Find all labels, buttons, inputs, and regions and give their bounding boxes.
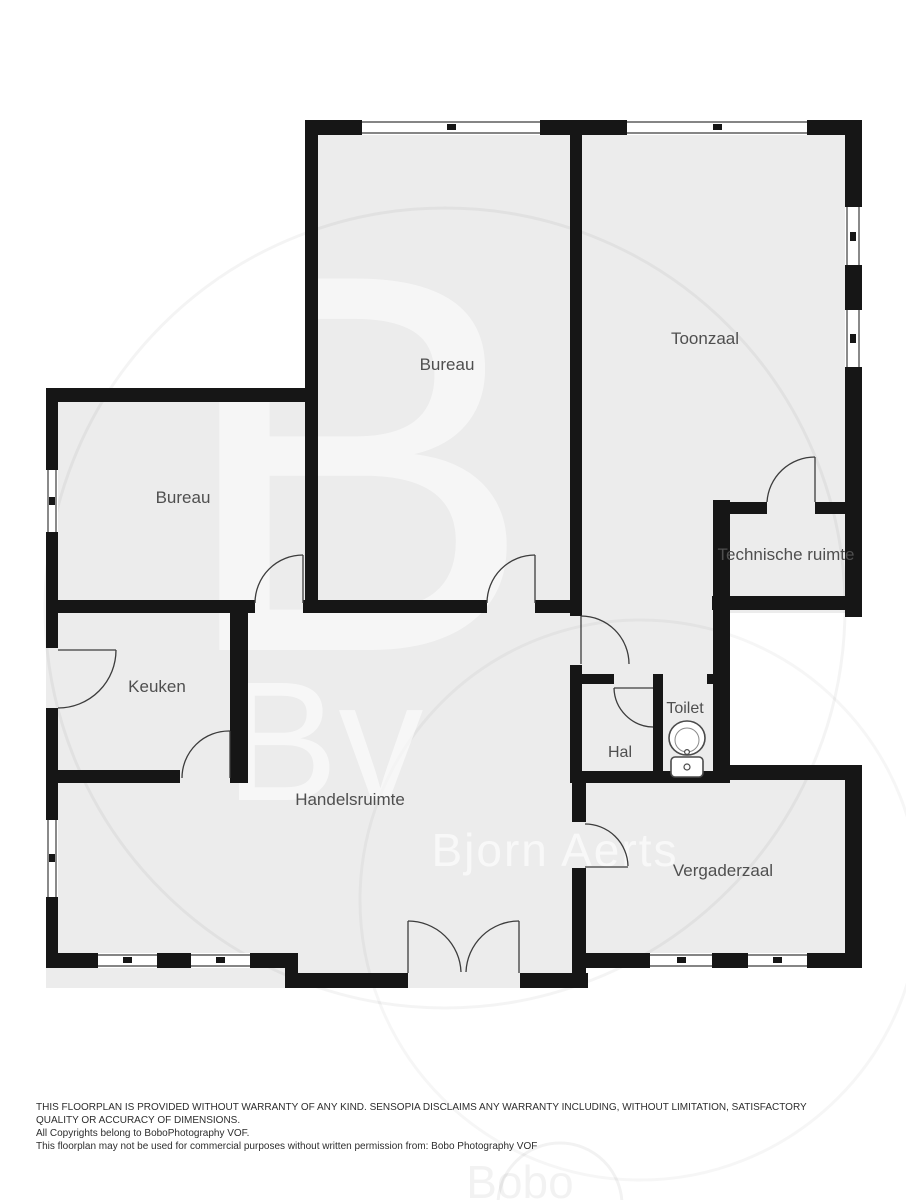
floorplan-page: B Bv Bjorn Aerts Bobo [0, 0, 906, 1200]
toilet-icon [669, 721, 705, 777]
disclaimer-line-copyright: All Copyrights belong to BoboPhotography… [36, 1127, 836, 1140]
floorplan-drawing: B Bv Bjorn Aerts Bobo [0, 0, 906, 1200]
window-handelsruimte-bottom-2 [191, 953, 250, 968]
window-handelsruimte-left [46, 820, 58, 897]
room-label-toilet: Toilet [666, 700, 704, 717]
window-handelsruimte-bottom-1 [98, 953, 157, 968]
room-label-vergaderzaal: Vergaderzaal [673, 861, 773, 880]
window-vergaderzaal-bottom-1 [650, 953, 712, 968]
disclaimer: THIS FLOORPLAN IS PROVIDED WITHOUT WARRA… [36, 1101, 836, 1153]
room-label-keuken: Keuken [128, 677, 186, 696]
window-bureau-left [46, 470, 58, 532]
disclaimer-line-warranty: THIS FLOORPLAN IS PROVIDED WITHOUT WARRA… [36, 1101, 836, 1127]
disclaimer-line-permission: This floorplan may not be used for comme… [36, 1140, 836, 1153]
window-toonzaal-top [627, 120, 807, 135]
window-toonzaal-right-1 [845, 207, 862, 265]
window-toonzaal-right-2 [845, 310, 862, 367]
watermark-name: Bjorn Aerts [432, 824, 679, 876]
window-vergaderzaal-bottom-2 [748, 953, 807, 968]
room-label-hal: Hal [608, 744, 632, 761]
room-label-bureau-left: Bureau [156, 488, 211, 507]
window-bureau-top [362, 120, 540, 135]
room-label-toonzaal: Toonzaal [671, 329, 739, 348]
room-label-bureau-middle: Bureau [420, 355, 475, 374]
watermark-bottom-name: Bobo [466, 1156, 573, 1200]
room-label-handelsruimte: Handelsruimte [295, 790, 405, 809]
room-label-technische-ruimte: Technische ruimte [717, 545, 854, 564]
